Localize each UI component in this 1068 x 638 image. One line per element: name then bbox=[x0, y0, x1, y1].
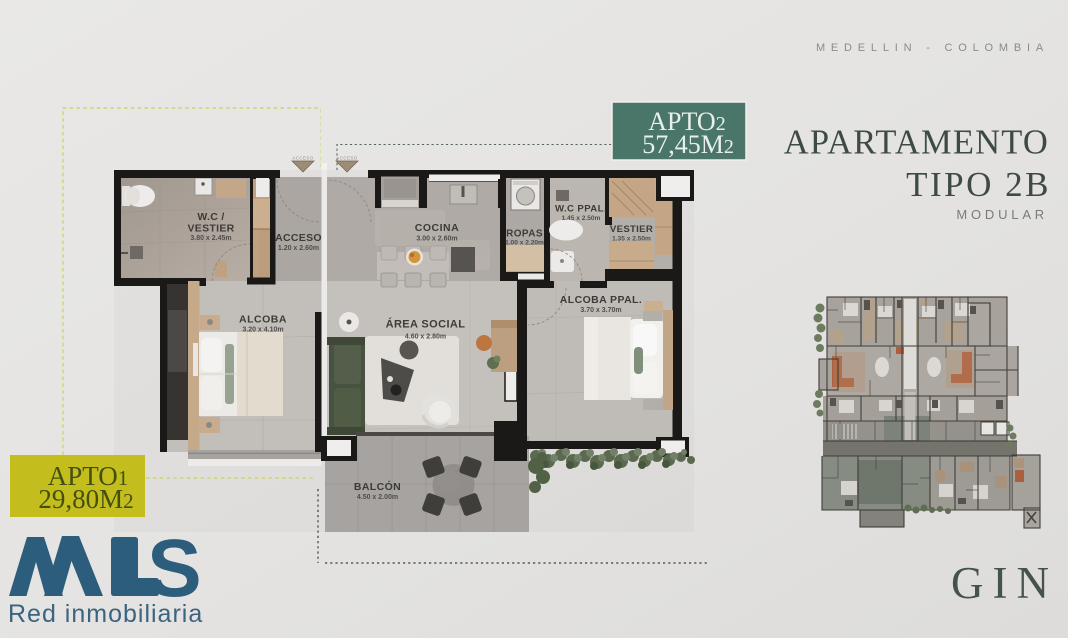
svg-text:Red inmobiliaria: Red inmobiliaria bbox=[8, 600, 203, 628]
svg-text:MEDELLIN - COLOMBIA: MEDELLIN - COLOMBIA bbox=[816, 42, 1049, 54]
svg-text:ACCESO: ACCESO bbox=[336, 156, 357, 161]
svg-text:APARTAMENTO: APARTAMENTO bbox=[784, 124, 1049, 162]
svg-text:ACCESO: ACCESO bbox=[292, 156, 313, 161]
svg-text:GIN: GIN bbox=[951, 558, 1058, 608]
svg-text:29,80M2: 29,80M2 bbox=[38, 484, 133, 514]
svg-text:MODULAR: MODULAR bbox=[956, 207, 1048, 222]
svg-text:TIPO 2B: TIPO 2B bbox=[906, 165, 1051, 204]
svg-text:57,45M2: 57,45M2 bbox=[642, 130, 734, 159]
